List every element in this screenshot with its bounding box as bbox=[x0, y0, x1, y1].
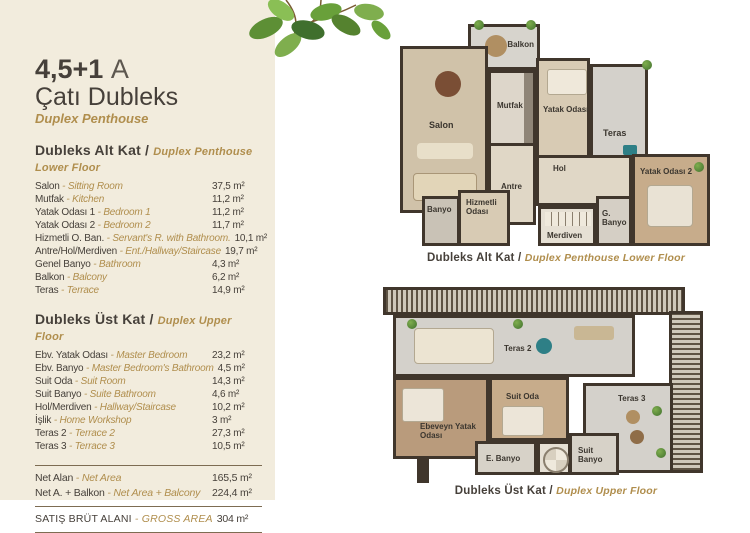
room-stair-upper bbox=[537, 441, 571, 475]
net-area-rows: Net Alan - Net Area 165,5 m² Net A. + Ba… bbox=[35, 471, 262, 501]
lower-floor-header: Dubleks Alt Kat / Duplex Penthouse Lower… bbox=[35, 142, 262, 174]
room-name: Teras 2 - Terrace 2 bbox=[35, 427, 208, 440]
plant-icon bbox=[694, 162, 704, 172]
room-area-value: 6,2 m² bbox=[208, 271, 262, 284]
room-area-value: 3 m² bbox=[208, 414, 262, 427]
room-name: Net A. + Balkon - Net Area + Balcony bbox=[35, 486, 208, 501]
wall-stub bbox=[417, 459, 429, 483]
room-name: Salon - Sitting Room bbox=[35, 180, 208, 193]
area-list-row: Suit Oda - Suit Room 14,3 m² bbox=[35, 375, 262, 388]
room-banyo: Banyo bbox=[422, 196, 460, 246]
upper-floor-header-tr: Dubleks Üst Kat / bbox=[35, 311, 154, 327]
area-list-row: Teras 3 - Terrace 3 10,5 m² bbox=[35, 440, 262, 453]
plant-icon bbox=[526, 20, 536, 30]
bed bbox=[502, 406, 544, 436]
coffee-table bbox=[435, 71, 461, 97]
room-area-value: 27,3 m² bbox=[208, 427, 262, 440]
upper-plan-caption: Dubleks Üst Kat / Duplex Upper Floor bbox=[396, 485, 716, 497]
area-list-row: Teras - Terrace 14,9 m² bbox=[35, 284, 262, 297]
room-area-value: 4,5 m² bbox=[214, 362, 268, 375]
room-name: Teras 3 - Terrace 3 bbox=[35, 440, 208, 453]
room-name: Teras - Terrace bbox=[35, 284, 208, 297]
lower-plan-caption-tr: Dubleks Alt Kat / bbox=[427, 252, 521, 264]
room-mutfak: Mutfak bbox=[488, 70, 536, 146]
area-list-row: İşlik - Home Workshop 3 m² bbox=[35, 414, 262, 427]
upper-floor-plan: Teras 2 Ebeveyn Yatak Odası Suit Oda Ter… bbox=[383, 283, 720, 483]
room-area-value: 10,2 m² bbox=[208, 401, 262, 414]
area-list-row: Salon - Sitting Room 37,5 m² bbox=[35, 180, 262, 193]
pergola-right bbox=[669, 311, 703, 473]
area-list-row: Ebv. Yatak Odası - Master Bedroom 23,2 m… bbox=[35, 349, 262, 362]
plant-icon bbox=[513, 319, 523, 329]
lower-plan-caption: Dubleks Alt Kat / Duplex Penthouse Lower… bbox=[396, 252, 716, 264]
room-suitoda: Suit Oda bbox=[489, 377, 569, 441]
room-area-value: 10,1 m² bbox=[231, 232, 285, 245]
outdoor-sofa bbox=[574, 326, 614, 340]
lower-floor-header-tr: Dubleks Alt Kat / bbox=[35, 142, 149, 158]
unit-variant: A bbox=[111, 54, 129, 84]
area-list-row: Hol/Merdiven - Hallway/Staircase 10,2 m² bbox=[35, 401, 262, 414]
room-area-value: 165,5 m² bbox=[208, 471, 262, 486]
spiral-staircase bbox=[543, 447, 569, 473]
room-area-value: 4,3 m² bbox=[208, 258, 262, 271]
room-area-value: 23,2 m² bbox=[208, 349, 262, 362]
area-list-row: Ebv. Banyo - Master Bedroom's Bathroom 4… bbox=[35, 362, 262, 375]
room-yatak1: Yatak Odası 1 bbox=[536, 58, 590, 158]
kitchen-counter bbox=[524, 73, 533, 143]
room-name: Ebv. Yatak Odası - Master Bedroom bbox=[35, 349, 208, 362]
plant-icon bbox=[656, 448, 666, 458]
room-salon: Salon bbox=[400, 46, 488, 213]
room-name: Suit Banyo - Suite Bathroom bbox=[35, 388, 208, 401]
room-name: Yatak Odası 2 - Bedroom 2 bbox=[35, 219, 208, 232]
room-area-value: 14,9 m² bbox=[208, 284, 262, 297]
room-area-value: 37,5 m² bbox=[208, 180, 262, 193]
bed bbox=[402, 388, 444, 422]
lower-floor-plan: Balkon Salon Mutfak Antre Yatak Odası 1 … bbox=[398, 18, 714, 250]
terrace-plant-pot bbox=[536, 338, 552, 354]
room-name: Antre/Hol/Merdiven - Ent./Hallway/Stairc… bbox=[35, 245, 221, 258]
area-list-row: Net A. + Balkon - Net Area + Balcony 224… bbox=[35, 486, 262, 501]
area-list-row: Suit Banyo - Suite Bathroom 4,6 m² bbox=[35, 388, 262, 401]
staircase bbox=[545, 212, 591, 226]
room-name: Net Alan - Net Area bbox=[35, 471, 208, 486]
room-name: Yatak Odası 1 - Bedroom 1 bbox=[35, 206, 208, 219]
unit-type: 4,5+1 bbox=[35, 54, 103, 84]
pergola-top bbox=[383, 287, 685, 315]
leaf-branch-decoration bbox=[226, 0, 396, 70]
room-name: İşlik - Home Workshop bbox=[35, 414, 208, 427]
sofa bbox=[417, 143, 473, 159]
gross-area-label-en: - GROSS AREA bbox=[132, 513, 213, 525]
bed bbox=[647, 185, 693, 227]
plant-icon bbox=[407, 319, 417, 329]
ottoman bbox=[630, 430, 644, 444]
area-list-row: Genel Banyo - Bathroom 4,3 m² bbox=[35, 258, 262, 271]
upper-plan-caption-tr: Dubleks Üst Kat / bbox=[455, 485, 553, 497]
area-list-row: Yatak Odası 2 - Bedroom 2 11,7 m² bbox=[35, 219, 262, 232]
ottoman bbox=[626, 410, 640, 424]
plant-icon bbox=[652, 406, 662, 416]
room-hizmetli: Hizmetli Odası bbox=[458, 190, 510, 246]
room-name: Genel Banyo - Bathroom bbox=[35, 258, 208, 271]
upper-floor-header: Dubleks Üst Kat / Duplex Upper Floor bbox=[35, 311, 262, 343]
divider bbox=[35, 506, 262, 507]
area-totals: Net Alan - Net Area 165,5 m² Net A. + Ba… bbox=[35, 465, 262, 533]
room-merdiven: Merdiven bbox=[538, 206, 596, 246]
page-subtitle-tr: Çatı Dubleks bbox=[35, 84, 262, 111]
room-area-value: 224,4 m² bbox=[208, 486, 262, 501]
room-area-value: 19,7 m² bbox=[221, 245, 275, 258]
gross-area-row: SATIŞ BRÜT ALANI - GROSS AREA 304 m² bbox=[35, 512, 262, 527]
room-area-value: 11,2 m² bbox=[208, 206, 262, 219]
page-subtitle-en: Duplex Penthouse bbox=[35, 111, 262, 127]
room-area-value: 11,2 m² bbox=[208, 193, 262, 206]
gross-area-value: 304 m² bbox=[213, 512, 267, 527]
lower-plan-caption-en: Duplex Penthouse Lower Floor bbox=[525, 252, 685, 264]
bed bbox=[547, 69, 587, 95]
room-area-value: 11,7 m² bbox=[208, 219, 262, 232]
room-area-value: 10,5 m² bbox=[208, 440, 262, 453]
outdoor-dining-table bbox=[414, 328, 494, 364]
plant-icon bbox=[642, 60, 652, 70]
area-list-row: Yatak Odası 1 - Bedroom 1 11,2 m² bbox=[35, 206, 262, 219]
gross-area-label-tr: SATIŞ BRÜT ALANI bbox=[35, 513, 132, 525]
plant-icon bbox=[474, 20, 484, 30]
room-gbanyo: G. Banyo bbox=[596, 196, 632, 246]
balcony-table bbox=[485, 35, 507, 57]
room-suitbanyo: Suit Banyo bbox=[569, 433, 619, 475]
lower-floor-room-list: Salon - Sitting Room 37,5 m² Mutfak - Ki… bbox=[35, 180, 262, 297]
area-list-row: Balkon - Balcony 6,2 m² bbox=[35, 271, 262, 284]
room-name: Ebv. Banyo - Master Bedroom's Bathroom bbox=[35, 362, 214, 375]
room-name: Hizmetli O. Ban. - Servant's R. with Bat… bbox=[35, 232, 231, 245]
area-list-row: Net Alan - Net Area 165,5 m² bbox=[35, 471, 262, 486]
room-name: Hol/Merdiven - Hallway/Staircase bbox=[35, 401, 208, 414]
area-list-row: Mutfak - Kitchen 11,2 m² bbox=[35, 193, 262, 206]
area-list-row: Antre/Hol/Merdiven - Ent./Hallway/Stairc… bbox=[35, 245, 262, 258]
divider bbox=[35, 465, 262, 466]
upper-plan-caption-en: Duplex Upper Floor bbox=[556, 485, 657, 497]
info-panel: 4,5+1 A Çatı Dubleks Duplex Penthouse Du… bbox=[0, 0, 275, 500]
room-name: Balkon - Balcony bbox=[35, 271, 208, 284]
area-list-row: Hizmetli O. Ban. - Servant's R. with Bat… bbox=[35, 232, 262, 245]
room-area-value: 14,3 m² bbox=[208, 375, 262, 388]
upper-floor-room-list: Ebv. Yatak Odası - Master Bedroom 23,2 m… bbox=[35, 349, 262, 453]
room-area-value: 4,6 m² bbox=[208, 388, 262, 401]
room-name: Mutfak - Kitchen bbox=[35, 193, 208, 206]
area-list-row: Teras 2 - Terrace 2 27,3 m² bbox=[35, 427, 262, 440]
room-name: Suit Oda - Suit Room bbox=[35, 375, 208, 388]
room-ebanyo: E. Banyo bbox=[475, 441, 537, 475]
